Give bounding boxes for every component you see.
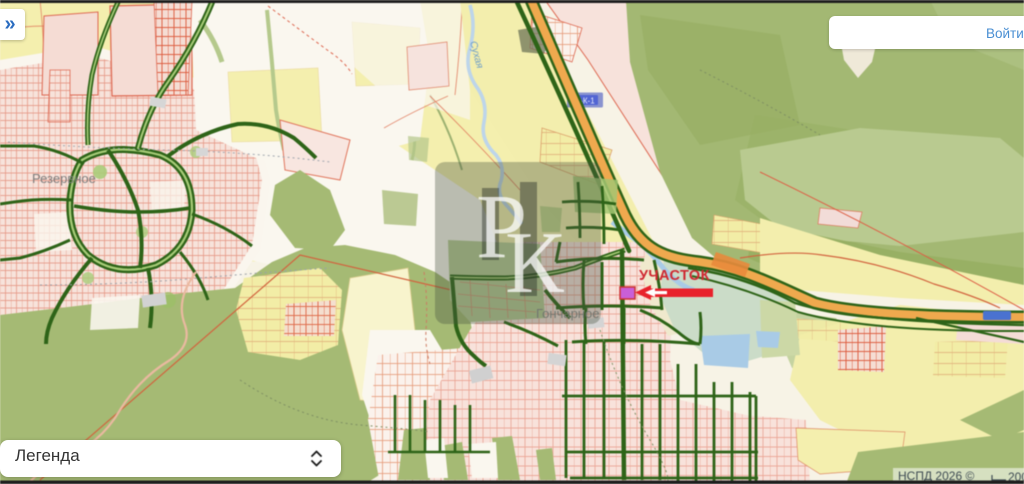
svg-text:Резервное: Резервное <box>32 171 96 186</box>
svg-text:УЧАСТОК: УЧАСТОК <box>639 268 710 284</box>
svg-text:К: К <box>505 215 564 312</box>
